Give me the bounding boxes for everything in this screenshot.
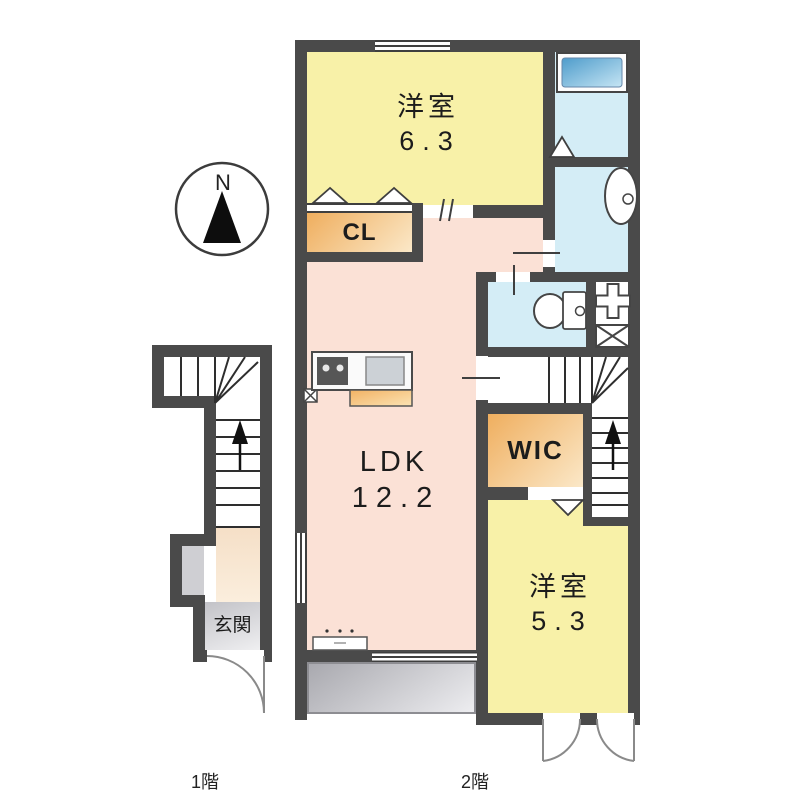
- compass-icon: N: [176, 163, 268, 255]
- room-area: 6.3: [391, 125, 461, 159]
- floor-label-1f: 1階: [155, 768, 255, 794]
- room-name: CL: [343, 218, 377, 248]
- room-area: 12.2: [344, 480, 440, 516]
- toilet-icon: [534, 292, 586, 329]
- sink-icon: [366, 357, 404, 385]
- room-label-west-b: 洋室 5.3: [488, 555, 628, 655]
- stairs-up-arrow-icon: [232, 420, 248, 470]
- room-name: WIC: [507, 434, 564, 467]
- floor-plan-page: N 洋室 6.3 CL LDK 12.2 WIC 洋室 5.3 玄関 1階 2階: [0, 0, 800, 800]
- room-label-closet: CL: [307, 213, 412, 252]
- stove-icon: [317, 357, 348, 385]
- compass-north-label: N: [215, 170, 231, 195]
- counter-orange: [350, 390, 412, 406]
- kitchen-counter: [312, 352, 412, 406]
- crossed-box-icon: [596, 325, 629, 347]
- bathtub-icon: [557, 53, 627, 92]
- washbasin-icon: [605, 168, 637, 224]
- room-name: 玄関: [213, 614, 251, 638]
- door-tick-marks: [440, 199, 560, 378]
- room-name: LDK: [356, 444, 428, 480]
- room-name: 洋室: [525, 571, 591, 605]
- ldk-low-counter: [313, 629, 367, 650]
- entrance-door-arc: [207, 656, 264, 713]
- double-door-arcs: [543, 719, 634, 761]
- floor-label-2f: 2階: [425, 768, 525, 794]
- washing-machine-pan-icon: [596, 284, 630, 318]
- room-label-ldk: LDK 12.2: [307, 425, 477, 535]
- room-name: 洋室: [393, 91, 459, 125]
- room-area: 5.3: [523, 605, 593, 639]
- room-label-entrance: 玄関: [205, 602, 260, 650]
- room-label-west-a: 洋室 6.3: [307, 75, 545, 175]
- stairs-1f: [181, 357, 260, 527]
- room-label-wic: WIC: [488, 413, 583, 487]
